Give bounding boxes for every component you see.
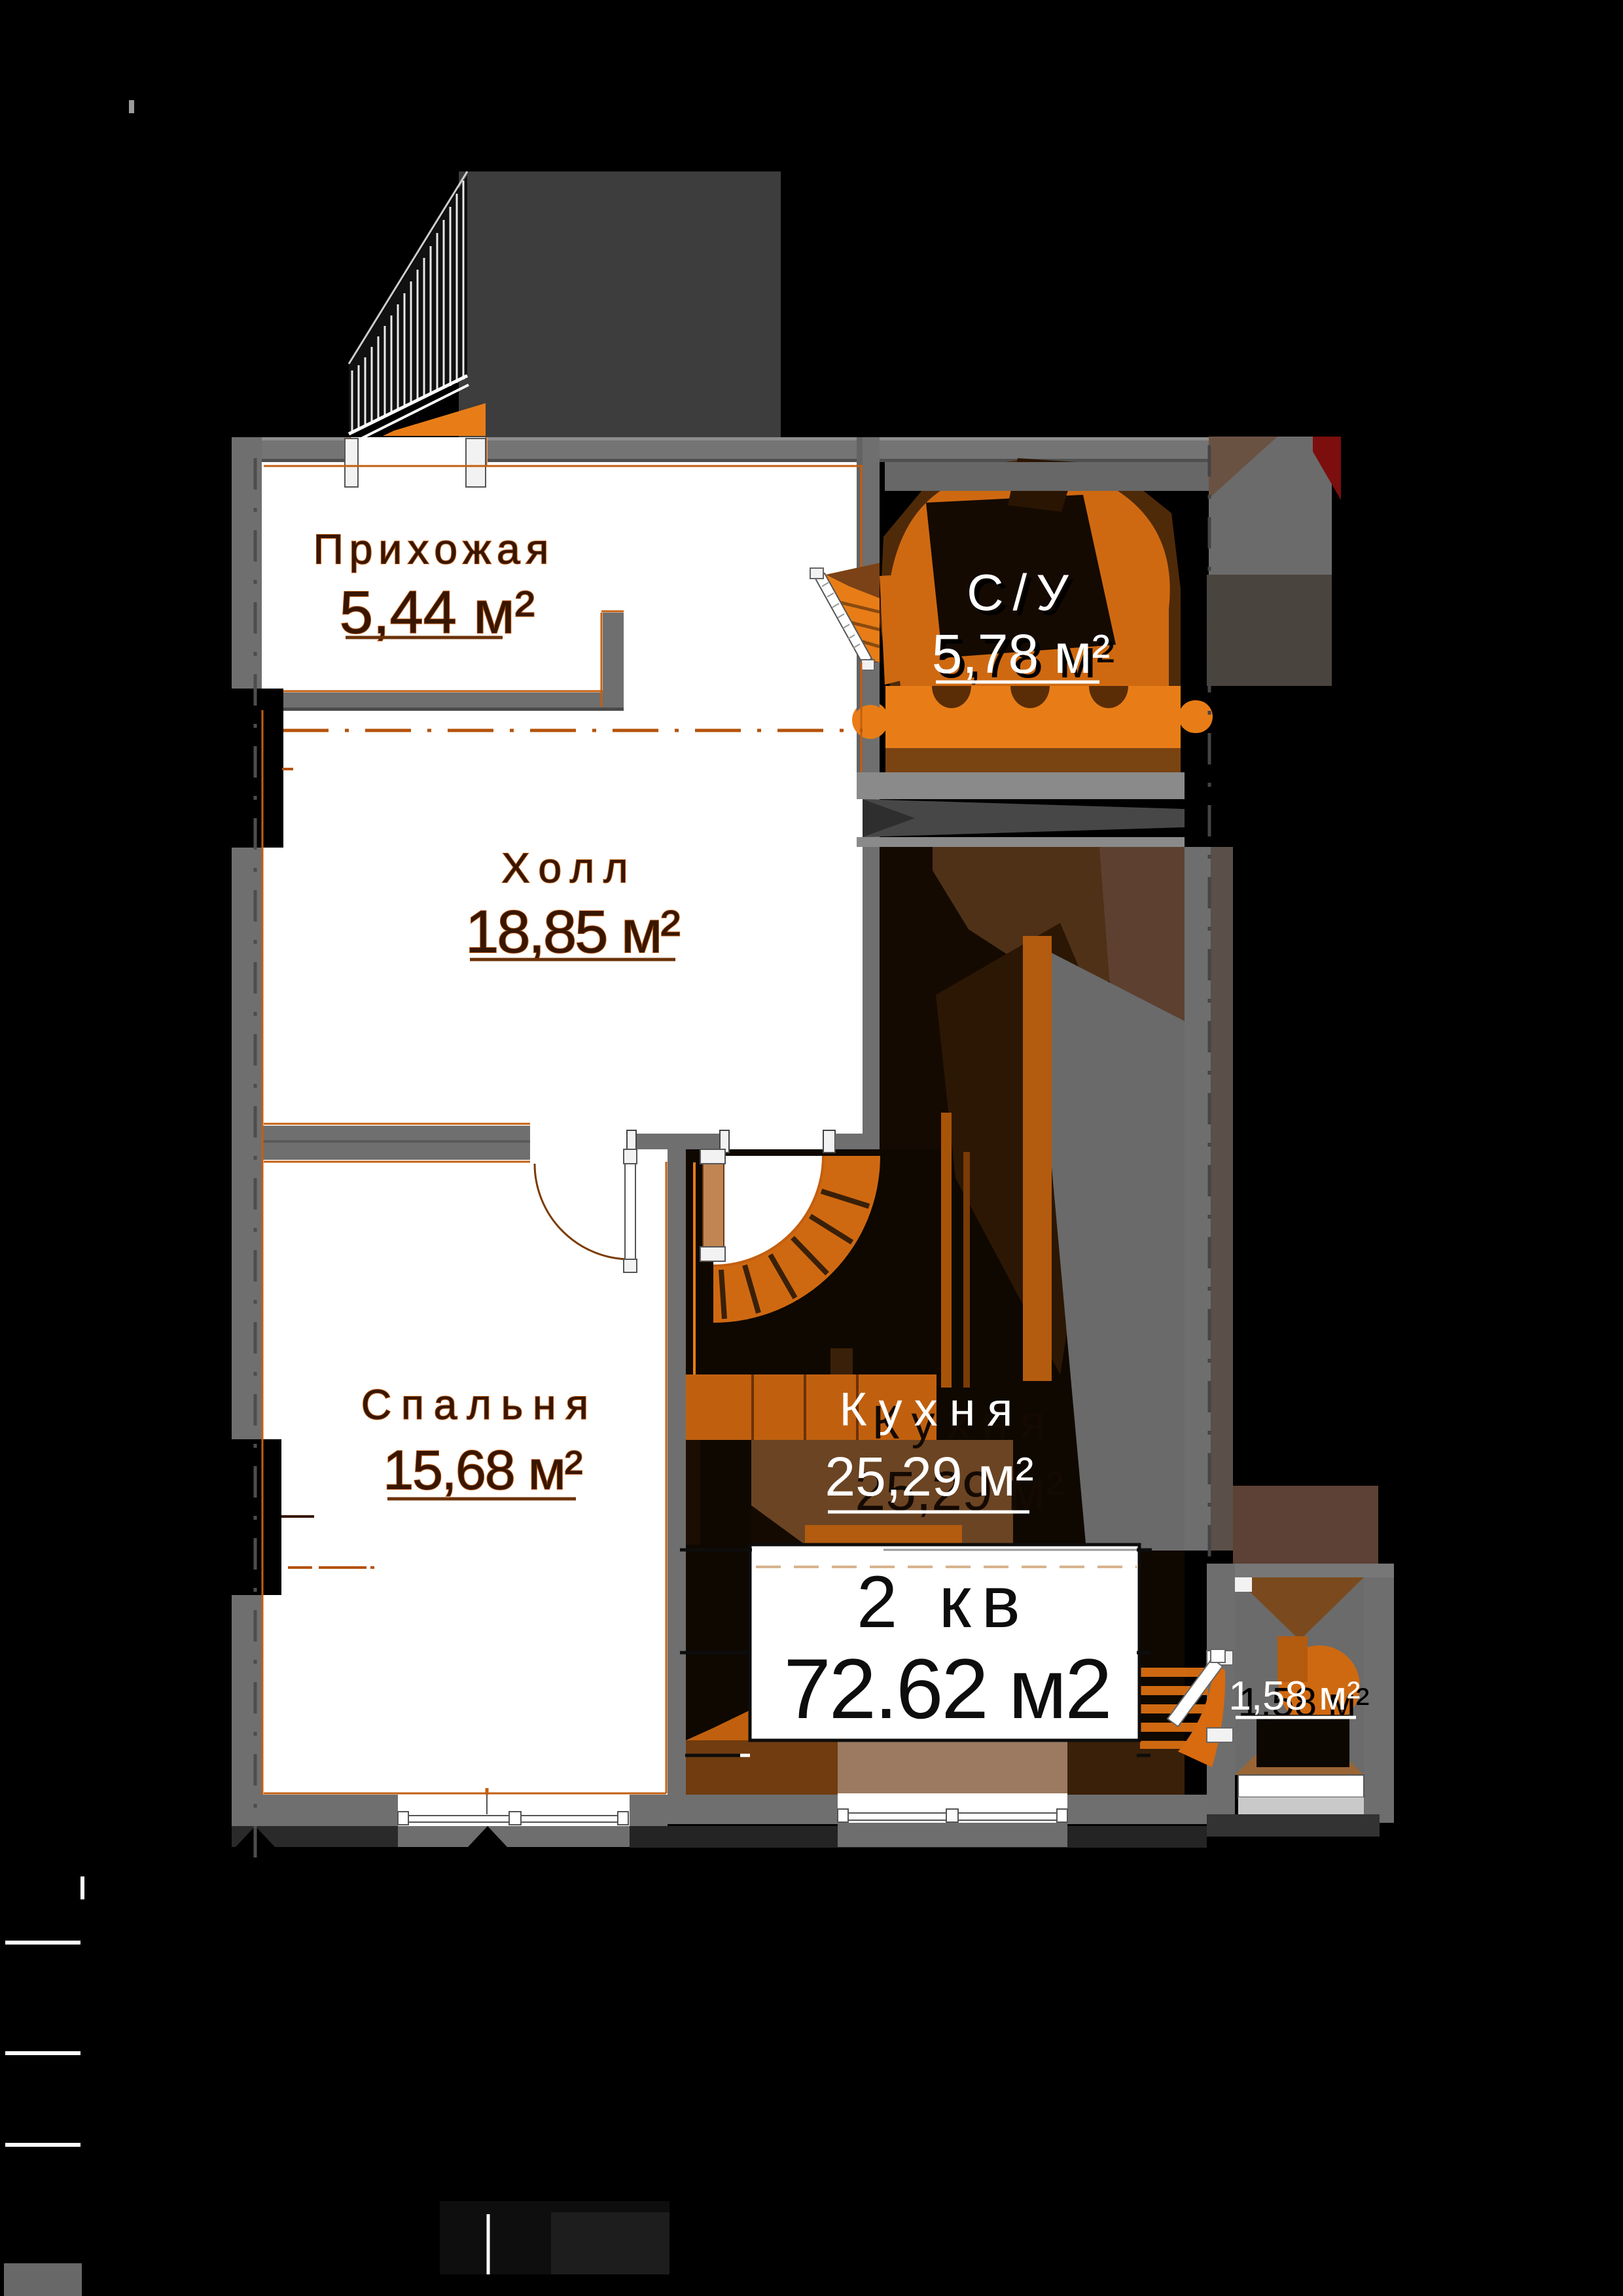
svg-text:Холл: Холл: [502, 844, 637, 891]
svg-text:5,78 м²: 5,78 м²: [932, 623, 1111, 685]
svg-text:Кухня: Кухня: [840, 1384, 1025, 1436]
svg-text:18,85 м²: 18,85 м²: [465, 899, 679, 965]
svg-text:1,58 м²: 1,58 м²: [1228, 1674, 1360, 1719]
svg-text:Спальня: Спальня: [361, 1381, 598, 1428]
svg-text:25,29 м²: 25,29 м²: [825, 1446, 1033, 1507]
svg-text:72.62 м2: 72.62 м2: [783, 1641, 1110, 1736]
svg-text:2 кв: 2 кв: [857, 1561, 1031, 1643]
svg-text:С/У: С/У: [967, 564, 1078, 621]
svg-text:Прихожая: Прихожая: [313, 526, 555, 573]
svg-text:15,68 м²: 15,68 м²: [383, 1439, 582, 1501]
